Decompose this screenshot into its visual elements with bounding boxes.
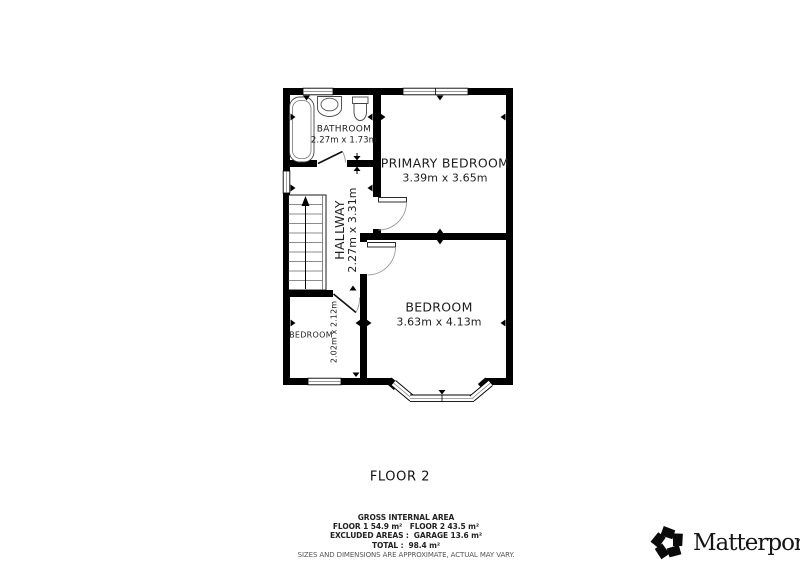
- matterport-pinwheel-icon: [650, 525, 686, 561]
- primary-bedroom-door: [379, 198, 407, 231]
- primary-bedroom-name: PRIMARY BEDROOM: [381, 157, 510, 172]
- floor-plan-page: BATHROOM 2.27m x 1.73m PRIMARY BEDROOM 3…: [0, 0, 800, 565]
- area-summary-title: GROSS INTERNAL AREA: [298, 513, 515, 522]
- sink-icon: [318, 97, 342, 117]
- hallway-name: HALLWAY: [333, 187, 346, 272]
- matterport-logo: Matterport®: [650, 523, 800, 563]
- area-summary-total: TOTAL : 98.4 m²: [298, 541, 515, 550]
- bedroom-dimensions: 3.63m x 4.13m: [396, 315, 481, 330]
- bedroom-label: BEDROOM 3.63m x 4.13m: [396, 301, 481, 330]
- staircase: [289, 195, 327, 290]
- primary-bedroom-window: [403, 88, 468, 95]
- small-bedroom-label: BEDROOM: [289, 331, 333, 340]
- primary-bedroom-dimensions: 3.39m x 3.65m: [381, 171, 510, 186]
- bathroom-dimensions: 2.27m x 1.73m: [311, 135, 377, 146]
- small-bedroom-name: BEDROOM: [289, 331, 333, 340]
- primary-bedroom-label: PRIMARY BEDROOM 3.39m x 3.65m: [381, 157, 510, 186]
- floor-title: FLOOR 2: [370, 470, 430, 485]
- bedroom-name: BEDROOM: [396, 301, 481, 316]
- small-bedroom-window: [308, 378, 341, 385]
- matterport-wordmark: Matterport®: [693, 530, 800, 556]
- hallway-window: [283, 171, 290, 193]
- small-bedroom-dimensions: 2.02m x 2.12m: [330, 301, 339, 363]
- small-bedroom-dimensions-label: 2.02m x 2.12m: [330, 301, 339, 363]
- toilet-icon: [353, 97, 369, 121]
- area-summary-excluded: EXCLUDED AREAS : GARAGE 13.6 m²: [298, 531, 515, 540]
- area-summary: GROSS INTERNAL AREA FLOOR 1 54.9 m² FLOO…: [298, 513, 515, 561]
- bathroom-name: BATHROOM: [311, 125, 377, 136]
- bathroom-door: [318, 152, 346, 164]
- bedroom-door: [368, 243, 396, 276]
- bay-wall-stubs: [389, 381, 488, 388]
- hallway-dimensions: 2.27m x 3.31m: [346, 187, 359, 272]
- hallway-label: HALLWAY 2.27m x 3.31m: [333, 187, 359, 272]
- area-summary-disclaimer: SIZES AND DIMENSIONS ARE APPROXIMATE, AC…: [298, 551, 515, 560]
- area-summary-floors: FLOOR 1 54.9 m² FLOOR 2 43.5 m²: [298, 522, 515, 531]
- matterport-wordmark-text: Matterport: [693, 530, 800, 556]
- bathroom-window: [303, 88, 333, 95]
- bathroom-label: BATHROOM 2.27m x 1.73m: [311, 125, 377, 146]
